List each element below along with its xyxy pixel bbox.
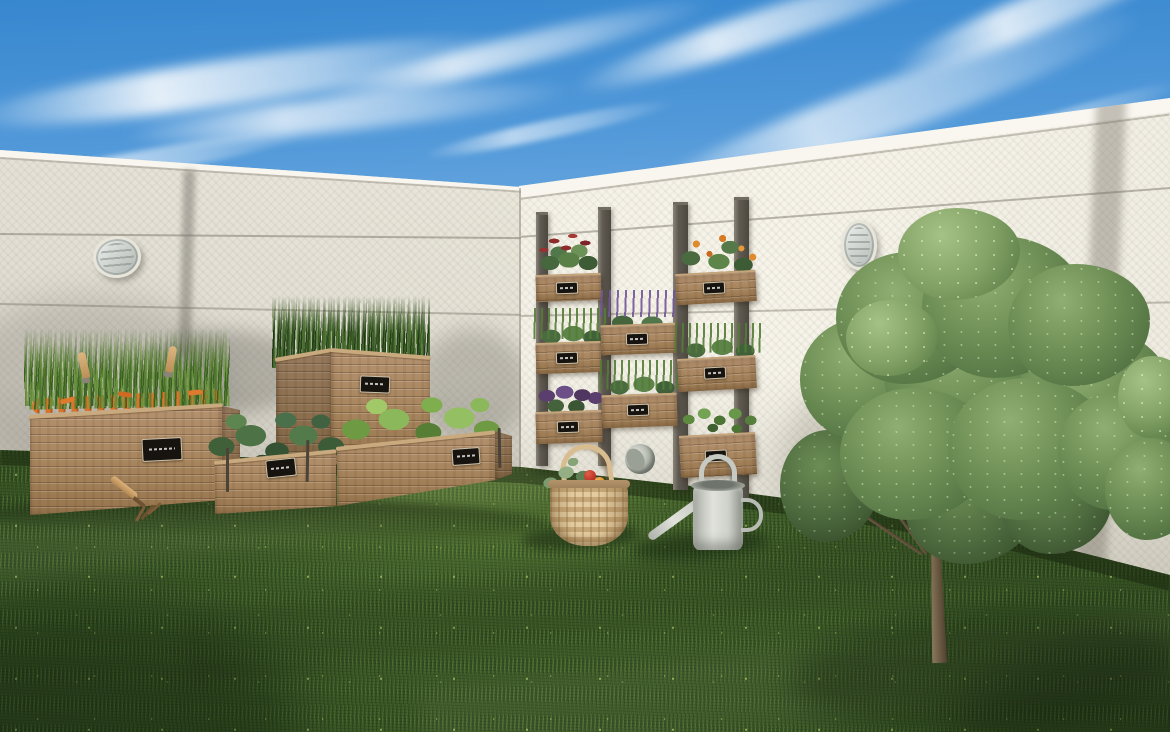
hand-fork (106, 478, 170, 536)
carrot-tops-front (27, 340, 226, 409)
brand-plaque (626, 333, 648, 346)
brand-plaque (703, 281, 726, 294)
watering-can (615, 440, 765, 555)
brand-plaque (556, 282, 578, 295)
brand-plaque (451, 447, 480, 466)
can-body (693, 484, 743, 550)
marigold-plants (670, 222, 764, 277)
brand-plaque (627, 404, 649, 417)
left-wall-joint-a (0, 233, 522, 239)
garden-render (0, 0, 1170, 732)
can-rim (691, 480, 745, 491)
can-side-handle (741, 498, 763, 532)
bulkhead-lamp-left (91, 234, 142, 280)
support-stake (226, 448, 229, 492)
brand-plaque (704, 366, 727, 379)
brand-plaque (556, 352, 578, 365)
lamp-grid (99, 242, 135, 273)
brand-plaque (557, 421, 579, 434)
chili-pepper-plants (532, 228, 606, 278)
lamp-grid (848, 227, 870, 263)
brand-plaque (265, 457, 297, 478)
brand-plaque (141, 437, 182, 462)
